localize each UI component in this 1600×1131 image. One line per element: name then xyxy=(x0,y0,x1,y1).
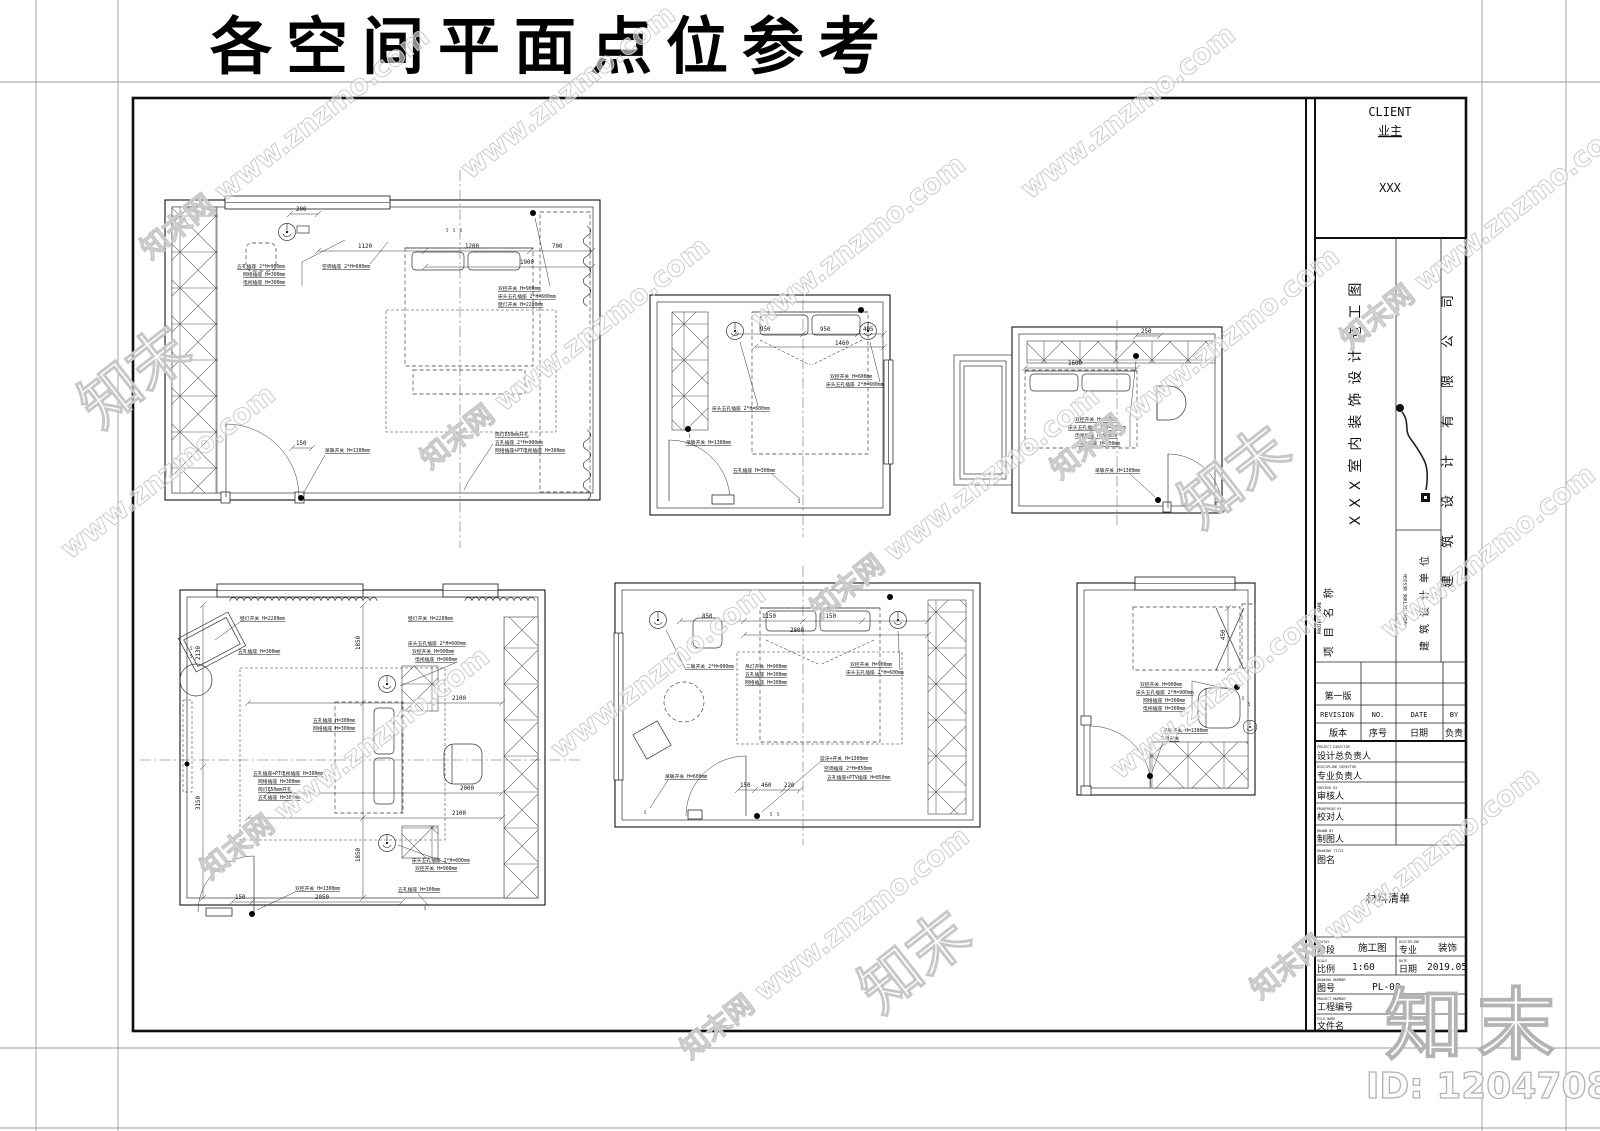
svg-text:250: 250 xyxy=(1141,329,1152,335)
svg-text:五孔插座 H=300mm: 五孔插座 H=300mm xyxy=(745,671,787,678)
svg-text:双控开关 H=900mm: 双控开关 H=900mm xyxy=(415,865,457,872)
ceiling-fan-icon xyxy=(379,835,396,852)
svg-text:DATE: DATE xyxy=(1399,959,1407,963)
svg-text:150: 150 xyxy=(235,895,246,901)
scale-value: 1:60 xyxy=(1352,962,1375,973)
cad-sheet-svg: 各空间平面点位参考 xyxy=(0,0,1600,1131)
watermark-layer: 知末网 www.znzmo.com www.znzmo.com 知末网 www.… xyxy=(54,0,1600,1066)
scale-label: 比例 xyxy=(1317,963,1335,975)
svg-text:双控开关 H=900mm: 双控开关 H=900mm xyxy=(412,648,454,655)
svg-text:5: 5 xyxy=(644,810,647,815)
drawing-sheet: 各空间平面点位参考 xyxy=(0,0,1600,1131)
svg-text:床头五孔插座 2*H=600mm: 床头五孔插座 2*H=600mm xyxy=(712,405,770,412)
svg-text:五孔插座 H=300mm: 五孔插座 H=300mm xyxy=(238,648,280,655)
svg-text:五孔插座 H=300mm: 五孔插座 H=300mm xyxy=(313,717,355,724)
site-logo: 知末 xyxy=(1385,981,1569,1071)
svg-text:2100: 2100 xyxy=(452,811,466,817)
svg-text:知末: 知末 xyxy=(1166,413,1304,542)
svg-text:www.znzmo.com: www.znzmo.com xyxy=(744,148,972,336)
svg-text:5: 5 xyxy=(424,906,427,911)
svg-text:5: 5 xyxy=(1248,702,1251,707)
svg-text:5: 5 xyxy=(777,812,780,817)
site-branding: 知末 ID: 1204708108 xyxy=(1366,981,1600,1107)
door-icon xyxy=(686,756,746,819)
svg-text:DISCIPLINE: DISCIPLINE xyxy=(1399,940,1419,944)
svg-text:五孔插座+PTV插座 H=850mm: 五孔插座+PTV插座 H=850mm xyxy=(827,774,891,781)
door-icon xyxy=(669,440,734,504)
svg-text:950: 950 xyxy=(820,327,831,333)
ceiling-fan-icon xyxy=(379,676,396,693)
company-name: 建筑设计有限公司 xyxy=(1440,268,1456,588)
page-title: 各空间平面点位参考 xyxy=(210,10,894,83)
svg-text:5: 5 xyxy=(190,646,193,651)
svg-text:200: 200 xyxy=(296,207,307,213)
svg-text:PROJECT NUMBER: PROJECT NUMBER xyxy=(1317,997,1347,1001)
image-id: ID: 1204708108 xyxy=(1366,1066,1600,1107)
svg-text:五孔插座 2*H=900mm: 五孔插座 2*H=900mm xyxy=(237,263,285,270)
svg-text:序号: 序号 xyxy=(1369,727,1387,739)
svg-text:网络插座+PT电视插座 H=300mm: 网络插座+PT电视插座 H=300mm xyxy=(495,447,565,454)
svg-text:2000: 2000 xyxy=(460,786,474,792)
radiator-icon xyxy=(583,226,591,306)
svg-text:负责: 负责 xyxy=(1445,727,1463,739)
svg-text:双控开关 H=900mm: 双控开关 H=900mm xyxy=(1140,681,1182,688)
svg-text:日期: 日期 xyxy=(1410,728,1428,739)
svg-text:单联开关 H=1300mm: 单联开关 H=1300mm xyxy=(325,447,370,454)
svg-text:单联开关 H=1300mm: 单联开关 H=1300mm xyxy=(686,439,731,446)
svg-text:DISCIPLINE DIRECTOR: DISCIPLINE DIRECTOR xyxy=(1317,765,1357,769)
svg-text:床头五孔插座 2*H=600mm: 床头五孔插座 2*H=600mm xyxy=(498,293,556,300)
table-icon xyxy=(664,682,704,722)
svg-text:知末网 www.znzmo.com: 知末网 www.znzmo.com xyxy=(804,380,1105,626)
signature-icon xyxy=(1396,404,1430,502)
svg-text:1200: 1200 xyxy=(465,244,479,250)
svg-text:网络插座 H=300mm: 网络插座 H=300mm xyxy=(745,679,787,686)
door-leaf-icon xyxy=(183,700,192,792)
svg-text:双控开关 H=900mm: 双控开关 H=900mm xyxy=(498,285,540,292)
svg-text:5: 5 xyxy=(798,499,801,504)
svg-text:150: 150 xyxy=(296,441,307,447)
svg-text:网络插座 H=300mm: 网络插座 H=300mm xyxy=(313,725,355,732)
field-drawn-by: 制图人 xyxy=(1317,833,1344,845)
svg-text:460: 460 xyxy=(761,783,772,789)
revision-header-en: REVISION xyxy=(1320,711,1354,719)
field-proofread-by: 校对人 xyxy=(1317,811,1344,823)
svg-text:DRAWING TITLE: DRAWING TITLE xyxy=(1317,849,1344,853)
window-icon xyxy=(217,584,498,597)
floor-plan-5: 850 1150 1150 2800 150 460 220 二联开关 2*H=… xyxy=(614,566,980,845)
svg-text:知末网 www.znzmo.com: 知末网 www.znzmo.com xyxy=(1244,760,1545,1006)
table-icon xyxy=(178,612,245,672)
svg-text:2800: 2800 xyxy=(790,628,804,634)
radiator-icon xyxy=(583,430,591,500)
svg-text:壁灯开关 H=2200mm: 壁灯开关 H=2200mm xyxy=(240,615,285,622)
date-label: 日期 xyxy=(1399,964,1417,975)
svg-text:五孔插座 H=300mm: 五孔插座 H=300mm xyxy=(398,886,440,893)
svg-text:电视插座 H=300mm: 电视插座 H=300mm xyxy=(243,279,285,286)
svg-text:床头五孔插座 2*H=600mm: 床头五孔插座 2*H=600mm xyxy=(826,381,884,388)
client-value: XXX xyxy=(1379,181,1401,195)
svg-text:5: 5 xyxy=(770,812,773,817)
svg-text:知末网 www.znzmo.com: 知末网 www.znzmo.com xyxy=(194,640,495,886)
svg-text:床头五孔插座 2*H=600mm: 床头五孔插座 2*H=600mm xyxy=(408,640,466,647)
svg-text:双控开关 H=900mm: 双控开关 H=900mm xyxy=(850,661,892,668)
svg-text:www.znzmo.com: www.znzmo.com xyxy=(1014,18,1242,206)
window-icon xyxy=(225,196,390,209)
file-name-label: 文件名 xyxy=(1317,1020,1344,1032)
svg-text:1120: 1120 xyxy=(358,244,372,250)
project-no-label: 工程编号 xyxy=(1317,1001,1353,1013)
ceiling-fan-icon xyxy=(279,224,296,241)
annotations: 五孔插座 2*H=900mm 网络插座 H=300mm 电视插座 H=300mm… xyxy=(237,218,565,494)
window-icon xyxy=(1135,577,1235,590)
dimensions: 200 1120 1200 700 1900 150 xyxy=(287,207,595,451)
svg-text:壁灯开关 H=2200mm: 壁灯开关 H=2200mm xyxy=(498,301,543,308)
svg-text:床头五孔插座 2*H=600mm: 床头五孔插座 2*H=600mm xyxy=(846,669,904,676)
svg-text:吊灯开关 H=900mm: 吊灯开关 H=900mm xyxy=(745,663,787,670)
svg-text:CHECKED BY: CHECKED BY xyxy=(1317,786,1337,790)
svg-text:PROJECT DIRECTOR: PROJECT DIRECTOR xyxy=(1317,745,1351,749)
svg-text:405: 405 xyxy=(863,327,874,333)
field-checked-by: 审核人 xyxy=(1317,790,1344,802)
svg-text:2130: 2130 xyxy=(196,646,202,660)
svg-text:网络插座 H=300mm: 网络插座 H=300mm xyxy=(243,271,285,278)
svg-text:www.znzmo.com: www.znzmo.com xyxy=(544,578,772,766)
svg-text:筒灯D50mm开孔: 筒灯D50mm开孔 xyxy=(495,431,529,438)
discipline-label: 专业 xyxy=(1399,944,1417,956)
svg-text:5: 5 xyxy=(453,228,456,233)
chair-icon xyxy=(444,744,482,784)
annotations: 床头五孔插座 2*H=600mm 双控开关 H=600mm 床头五孔插座 2*H… xyxy=(686,342,884,504)
ceiling-fan-icon xyxy=(650,612,667,629)
discipline-value: 装饰 xyxy=(1438,942,1457,954)
svg-text:五孔插座 2*H=900mm: 五孔插座 2*H=900mm xyxy=(495,439,543,446)
svg-text:3150: 3150 xyxy=(196,796,202,810)
svg-text:1900: 1900 xyxy=(520,260,534,266)
curtain-icon xyxy=(465,598,535,602)
client-label-en: CLIENT xyxy=(1368,105,1411,119)
svg-text:DRAWING NUMBER: DRAWING NUMBER xyxy=(1317,978,1347,982)
svg-text:DRAWN BY: DRAWN BY xyxy=(1317,829,1333,833)
svg-text:双控开关 H=600mm: 双控开关 H=600mm xyxy=(830,373,872,380)
ceiling-fan-icon xyxy=(890,612,907,629)
svg-text:知末网 www.znzmo.com: 知末网 www.znzmo.com xyxy=(414,230,715,476)
svg-text:1850: 1850 xyxy=(356,848,362,862)
svg-text:450: 450 xyxy=(1221,629,1227,640)
chair-icon xyxy=(633,721,671,759)
svg-text:5: 5 xyxy=(446,228,449,233)
svg-text:双控开关 H=1300mm: 双控开关 H=1300mm xyxy=(295,885,340,892)
svg-text:空调插座 2*H=850mm: 空调插座 2*H=850mm xyxy=(824,765,872,772)
svg-text:2050: 2050 xyxy=(315,895,329,901)
window-icon xyxy=(884,360,893,464)
stage-value: 施工图 xyxy=(1358,942,1387,954)
svg-text:五孔插座 H=300mm: 五孔插座 H=300mm xyxy=(733,467,775,474)
field-discipline-director: 专业负责人 xyxy=(1317,770,1362,782)
svg-text:1600: 1600 xyxy=(1068,361,1082,367)
svg-text:700: 700 xyxy=(552,244,563,250)
date-value: 2019.05 xyxy=(1427,962,1467,973)
drawing-no-label: 图号 xyxy=(1317,983,1335,994)
svg-text:单联开关 H=600mm: 单联开关 H=600mm xyxy=(665,773,707,780)
svg-text:5: 5 xyxy=(460,228,463,233)
drawing-title-label: 图名 xyxy=(1317,854,1335,866)
svg-text:5: 5 xyxy=(1242,696,1245,701)
field-project-director: 设计总负责人 xyxy=(1317,750,1371,762)
svg-text:蓝牙+开关 H=1300mm: 蓝牙+开关 H=1300mm xyxy=(820,755,868,762)
revision-header-cn: 版本 xyxy=(1329,727,1347,739)
svg-text:BY: BY xyxy=(1450,711,1459,719)
client-label-cn: 业主 xyxy=(1378,124,1402,138)
svg-text:PROOFREAD BY: PROOFREAD BY xyxy=(1317,807,1342,811)
ceiling-fan-icon xyxy=(727,323,744,340)
svg-text:单联开关 H=1300mm: 单联开关 H=1300mm xyxy=(1095,467,1140,474)
svg-text:空调插座 2*H=600mm: 空调插座 2*H=600mm xyxy=(322,263,370,270)
svg-text:壁灯开关 H=2200mm: 壁灯开关 H=2200mm xyxy=(408,615,453,622)
svg-text:FILE NAME: FILE NAME xyxy=(1317,1017,1335,1021)
curtain-icon xyxy=(230,598,377,602)
svg-text:1850: 1850 xyxy=(356,636,362,650)
revision-first-row: 第一版 xyxy=(1324,690,1351,702)
svg-text:NO.: NO. xyxy=(1372,711,1385,719)
svg-text:1150: 1150 xyxy=(762,614,776,620)
svg-text:150: 150 xyxy=(740,783,751,789)
chair-icon xyxy=(180,664,212,696)
svg-text:1460: 1460 xyxy=(835,341,849,347)
svg-text:DATE: DATE xyxy=(1411,711,1428,719)
